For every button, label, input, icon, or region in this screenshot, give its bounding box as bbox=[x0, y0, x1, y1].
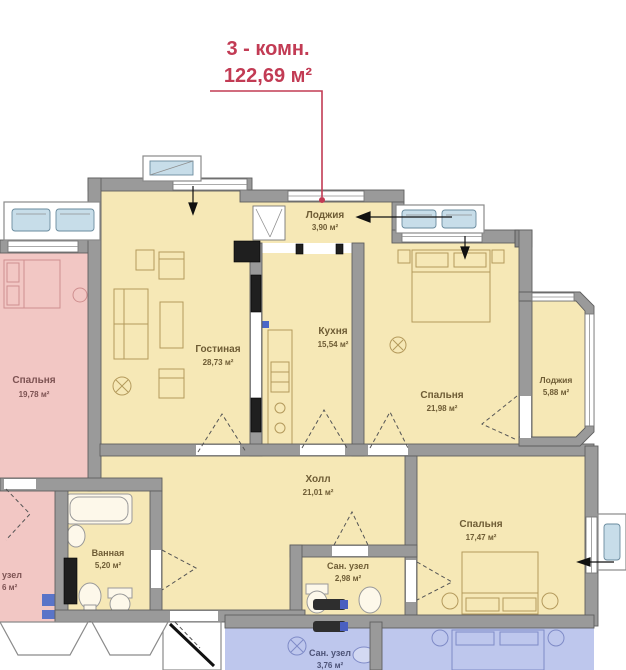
washer-icon bbox=[42, 610, 55, 619]
neighbor-bottom-fill bbox=[225, 622, 594, 670]
room-area: 5,88 м² bbox=[543, 388, 570, 397]
vent-shaft bbox=[234, 241, 260, 262]
door-opening bbox=[368, 445, 408, 455]
room-area: 19,78 м² bbox=[19, 390, 50, 399]
vent-shaft bbox=[64, 558, 77, 604]
sink-icon bbox=[359, 587, 381, 613]
room-area: 3,90 м² bbox=[312, 223, 339, 232]
kitchen-fill bbox=[260, 253, 352, 456]
bedroom-right-fill bbox=[364, 243, 519, 444]
door-opening bbox=[302, 244, 336, 254]
door-opening bbox=[332, 546, 368, 556]
room-label: Ванная bbox=[92, 548, 125, 558]
room-area: 3,76 м² bbox=[317, 661, 344, 670]
marker-icon bbox=[340, 622, 348, 631]
door-opening bbox=[520, 396, 531, 438]
apartment-type-label: 3 - комн. bbox=[226, 38, 309, 60]
hall-fill bbox=[100, 444, 594, 615]
room-label: Гостиная bbox=[195, 344, 240, 355]
room-label: узел bbox=[2, 570, 22, 580]
door-opening bbox=[151, 550, 161, 588]
room-label: Спальня bbox=[12, 375, 55, 386]
room-area: 15,54 м² bbox=[318, 340, 349, 349]
washer-icon bbox=[42, 594, 55, 606]
bay-window-icon bbox=[92, 622, 168, 655]
door-leaf-icon bbox=[296, 244, 303, 254]
door-leaf-icon bbox=[336, 244, 343, 254]
room-label: Спальня bbox=[459, 519, 502, 530]
neighbor-left-bedroom-fill bbox=[0, 253, 88, 478]
room-label: Лоджия bbox=[540, 375, 573, 385]
window-icon bbox=[288, 191, 364, 201]
apartment-area-label: 122,69 м² bbox=[224, 65, 313, 87]
room-label: Сан. узел bbox=[327, 561, 369, 571]
entrance-door bbox=[163, 622, 221, 670]
door-opening bbox=[196, 445, 240, 455]
bottom-edge bbox=[0, 622, 221, 670]
open-window-icon bbox=[253, 206, 285, 240]
ac-unit-icon bbox=[402, 210, 436, 228]
bay-window-icon bbox=[0, 622, 88, 655]
living-room-fill bbox=[100, 190, 252, 456]
passage-opening bbox=[251, 312, 261, 398]
room-area: 28,73 м² bbox=[203, 358, 234, 367]
door-opening bbox=[4, 479, 36, 489]
sink-icon bbox=[67, 525, 85, 547]
annotation-dot bbox=[319, 197, 325, 203]
window-icon bbox=[8, 241, 78, 252]
open-window-icon bbox=[143, 156, 201, 181]
bathtub-icon bbox=[66, 494, 132, 524]
room-area: 17,47 м² bbox=[466, 533, 497, 542]
room-label: Сан. узел bbox=[309, 648, 351, 658]
room-label: Холл bbox=[305, 474, 330, 485]
room-area: 2,98 м² bbox=[335, 574, 362, 583]
entrance-opening bbox=[170, 611, 218, 621]
floor-plan-svg: Лоджия 3,90 м² Гостиная 28,73 м² Кухня 1… bbox=[0, 0, 626, 670]
ac-unit-icon bbox=[12, 209, 50, 231]
marker-icon bbox=[340, 600, 348, 609]
window-icon bbox=[585, 314, 594, 426]
door-opening bbox=[406, 560, 416, 602]
door-leaf-icon bbox=[251, 275, 261, 312]
loggia-right-fill bbox=[525, 301, 590, 437]
ac-unit-icon bbox=[442, 210, 476, 228]
ac-unit-icon bbox=[604, 524, 620, 560]
room-label: Спальня bbox=[420, 390, 463, 401]
window-icon bbox=[532, 293, 574, 301]
door-opening bbox=[300, 445, 345, 455]
floor-plan: Лоджия 3,90 м² Гостиная 28,73 м² Кухня 1… bbox=[0, 0, 626, 670]
room-area: 21,01 м² bbox=[303, 488, 334, 497]
room-area: 5,20 м² bbox=[95, 561, 122, 570]
ac-unit-icon bbox=[56, 209, 94, 231]
door-leaf-icon bbox=[251, 398, 261, 432]
room-area: 21,98 м² bbox=[427, 404, 458, 413]
room-label: Лоджия bbox=[306, 210, 345, 221]
room-area: 6 м² bbox=[2, 583, 18, 592]
room-label: Кухня bbox=[318, 326, 347, 337]
